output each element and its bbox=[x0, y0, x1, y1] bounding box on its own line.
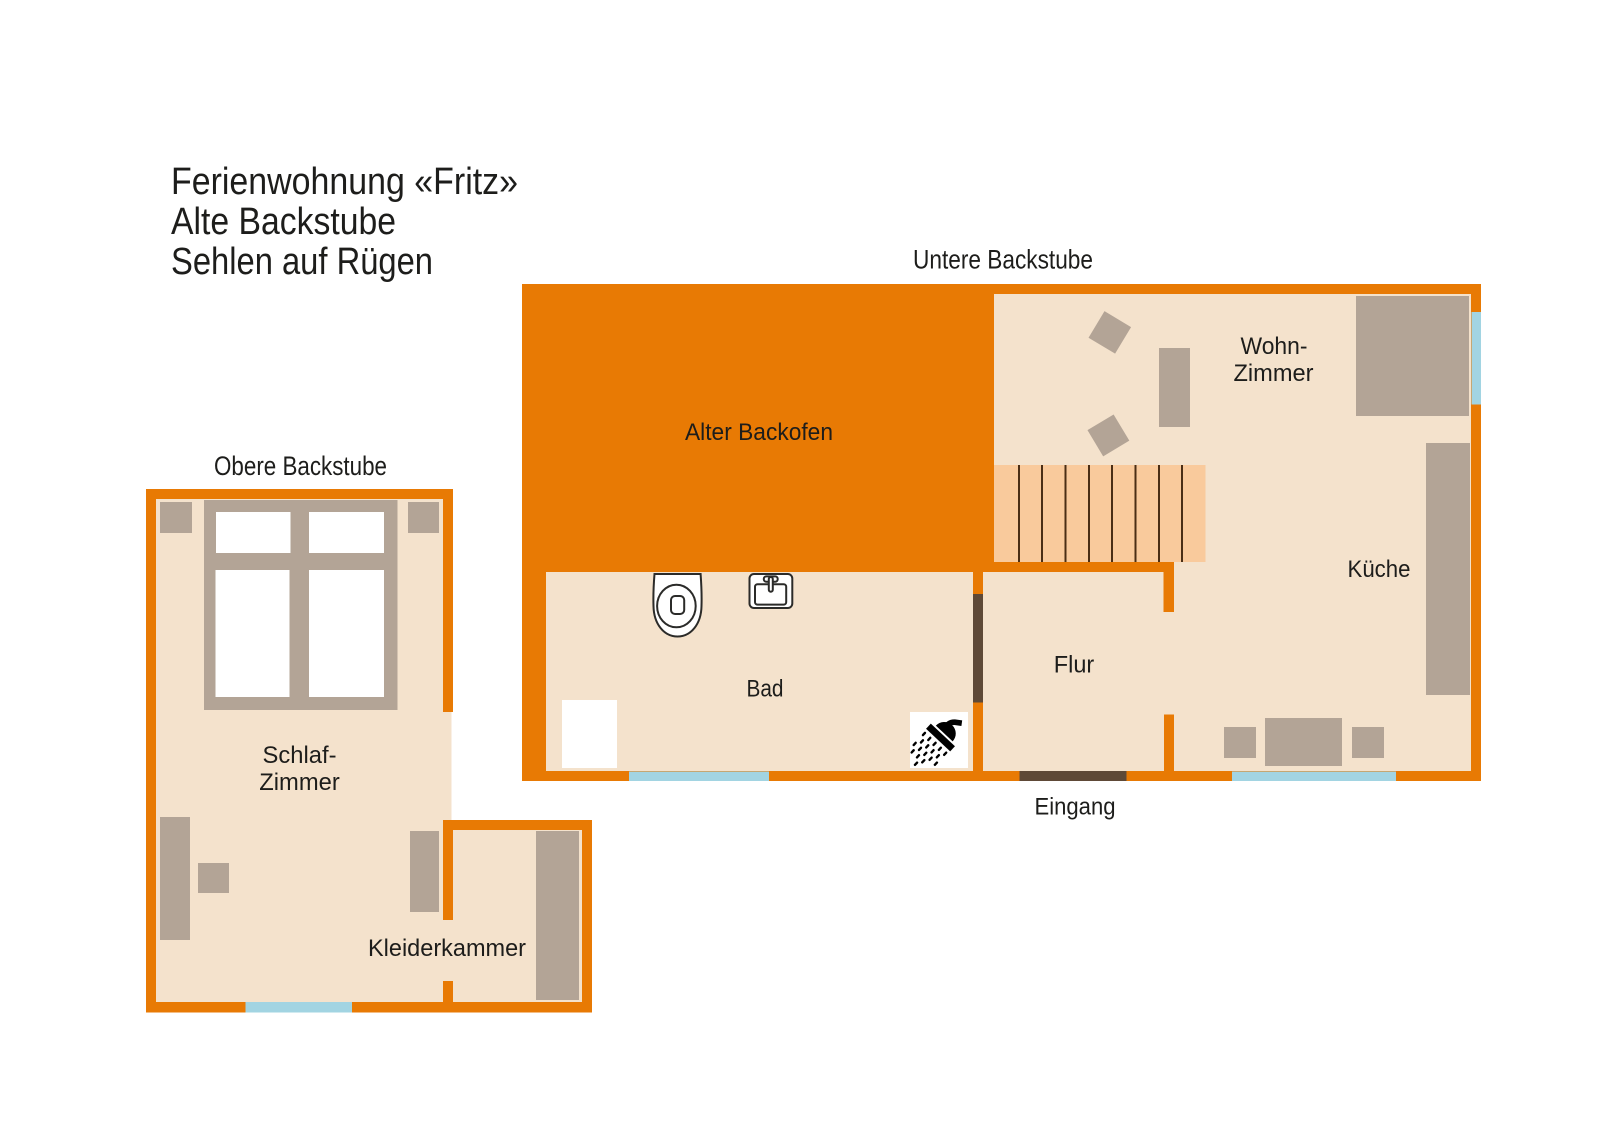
svg-text:Sehlen auf Rügen: Sehlen auf Rügen bbox=[171, 241, 433, 283]
svg-text:Untere Backstube: Untere Backstube bbox=[913, 245, 1093, 275]
svg-text:Küche: Küche bbox=[1348, 556, 1411, 583]
svg-text:Zimmer: Zimmer bbox=[259, 769, 340, 796]
svg-text:Alter Backofen: Alter Backofen bbox=[685, 419, 833, 446]
svg-text:Eingang: Eingang bbox=[1035, 794, 1116, 821]
svg-text:Obere Backstube: Obere Backstube bbox=[214, 451, 387, 481]
svg-text:Zimmer: Zimmer bbox=[1234, 360, 1314, 387]
svg-text:Alte Backstube: Alte Backstube bbox=[171, 201, 396, 243]
svg-text:Kleiderkammer: Kleiderkammer bbox=[368, 935, 526, 962]
svg-text:Wohn-: Wohn- bbox=[1241, 333, 1308, 360]
svg-text:Bad: Bad bbox=[747, 676, 784, 703]
svg-text:Ferienwohnung «Fritz»: Ferienwohnung «Fritz» bbox=[171, 161, 518, 203]
svg-text:Flur: Flur bbox=[1054, 652, 1095, 679]
svg-text:Schlaf-: Schlaf- bbox=[263, 742, 337, 769]
